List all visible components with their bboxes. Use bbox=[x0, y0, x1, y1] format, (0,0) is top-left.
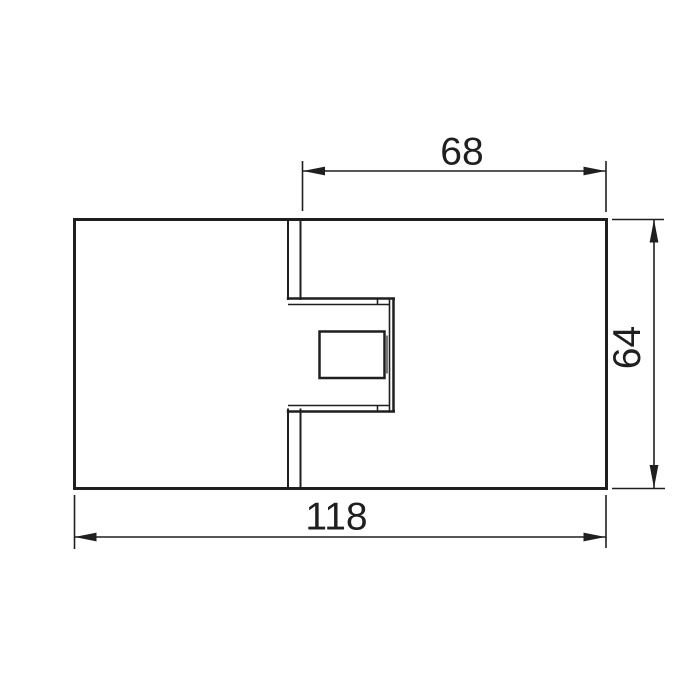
technical-drawing-canvas: 68 64 118 bbox=[0, 0, 700, 700]
dim64-label: 64 bbox=[606, 326, 649, 369]
dim68-label: 68 bbox=[440, 131, 483, 174]
dim68-arrow-right-icon bbox=[584, 167, 606, 176]
drawing-page: 68 64 118 bbox=[0, 0, 700, 700]
dimension-overall-height: 64 bbox=[606, 220, 665, 489]
dim64-arrow-up-icon bbox=[650, 220, 659, 243]
dim64-arrow-down-icon bbox=[650, 465, 659, 488]
dim118-arrow-left-icon bbox=[75, 533, 97, 542]
dimension-overall-width: 118 bbox=[75, 495, 607, 549]
center-block bbox=[320, 332, 385, 379]
dim118-arrow-right-icon bbox=[584, 533, 606, 542]
dimension-inset-width: 68 bbox=[303, 131, 607, 213]
dim68-arrow-left-icon bbox=[303, 167, 325, 176]
dim118-label: 118 bbox=[305, 496, 367, 539]
part-outline bbox=[75, 220, 607, 489]
part-view bbox=[75, 220, 607, 489]
